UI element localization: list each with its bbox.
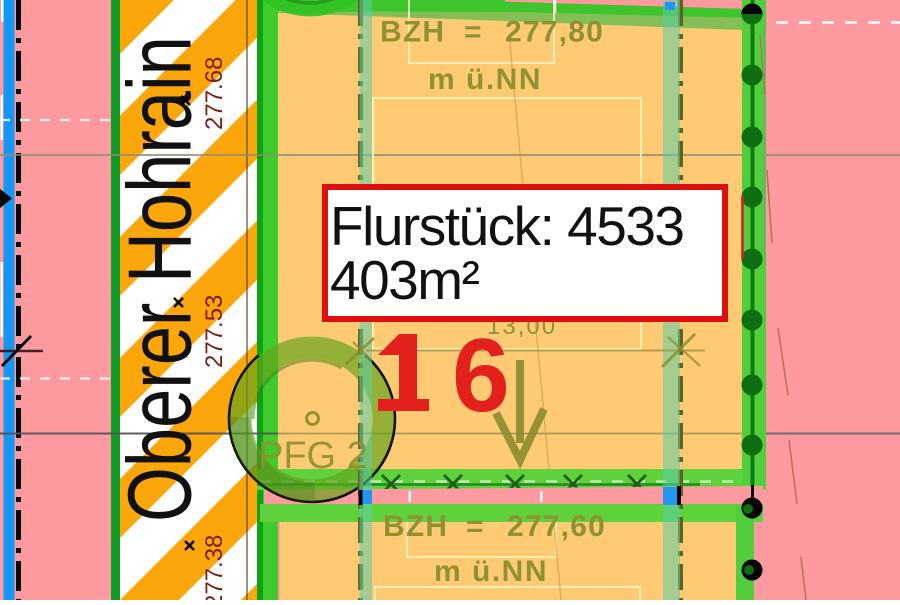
- svg-text:Oberer Hohrain: Oberer Hohrain: [111, 36, 211, 522]
- svg-text:277.53: 277.53: [201, 295, 228, 368]
- svg-text:m ü.NN: m ü.NN: [434, 555, 548, 588]
- svg-text:277.38: 277.38: [201, 535, 228, 600]
- svg-text:m ü.NN: m ü.NN: [428, 63, 542, 96]
- svg-text:PFG 2: PFG 2: [258, 435, 368, 477]
- svg-text:Flurstück: 4533: Flurstück: 4533: [330, 195, 684, 257]
- svg-text:403m²: 403m²: [330, 249, 480, 311]
- svg-text:277.68: 277.68: [201, 57, 228, 130]
